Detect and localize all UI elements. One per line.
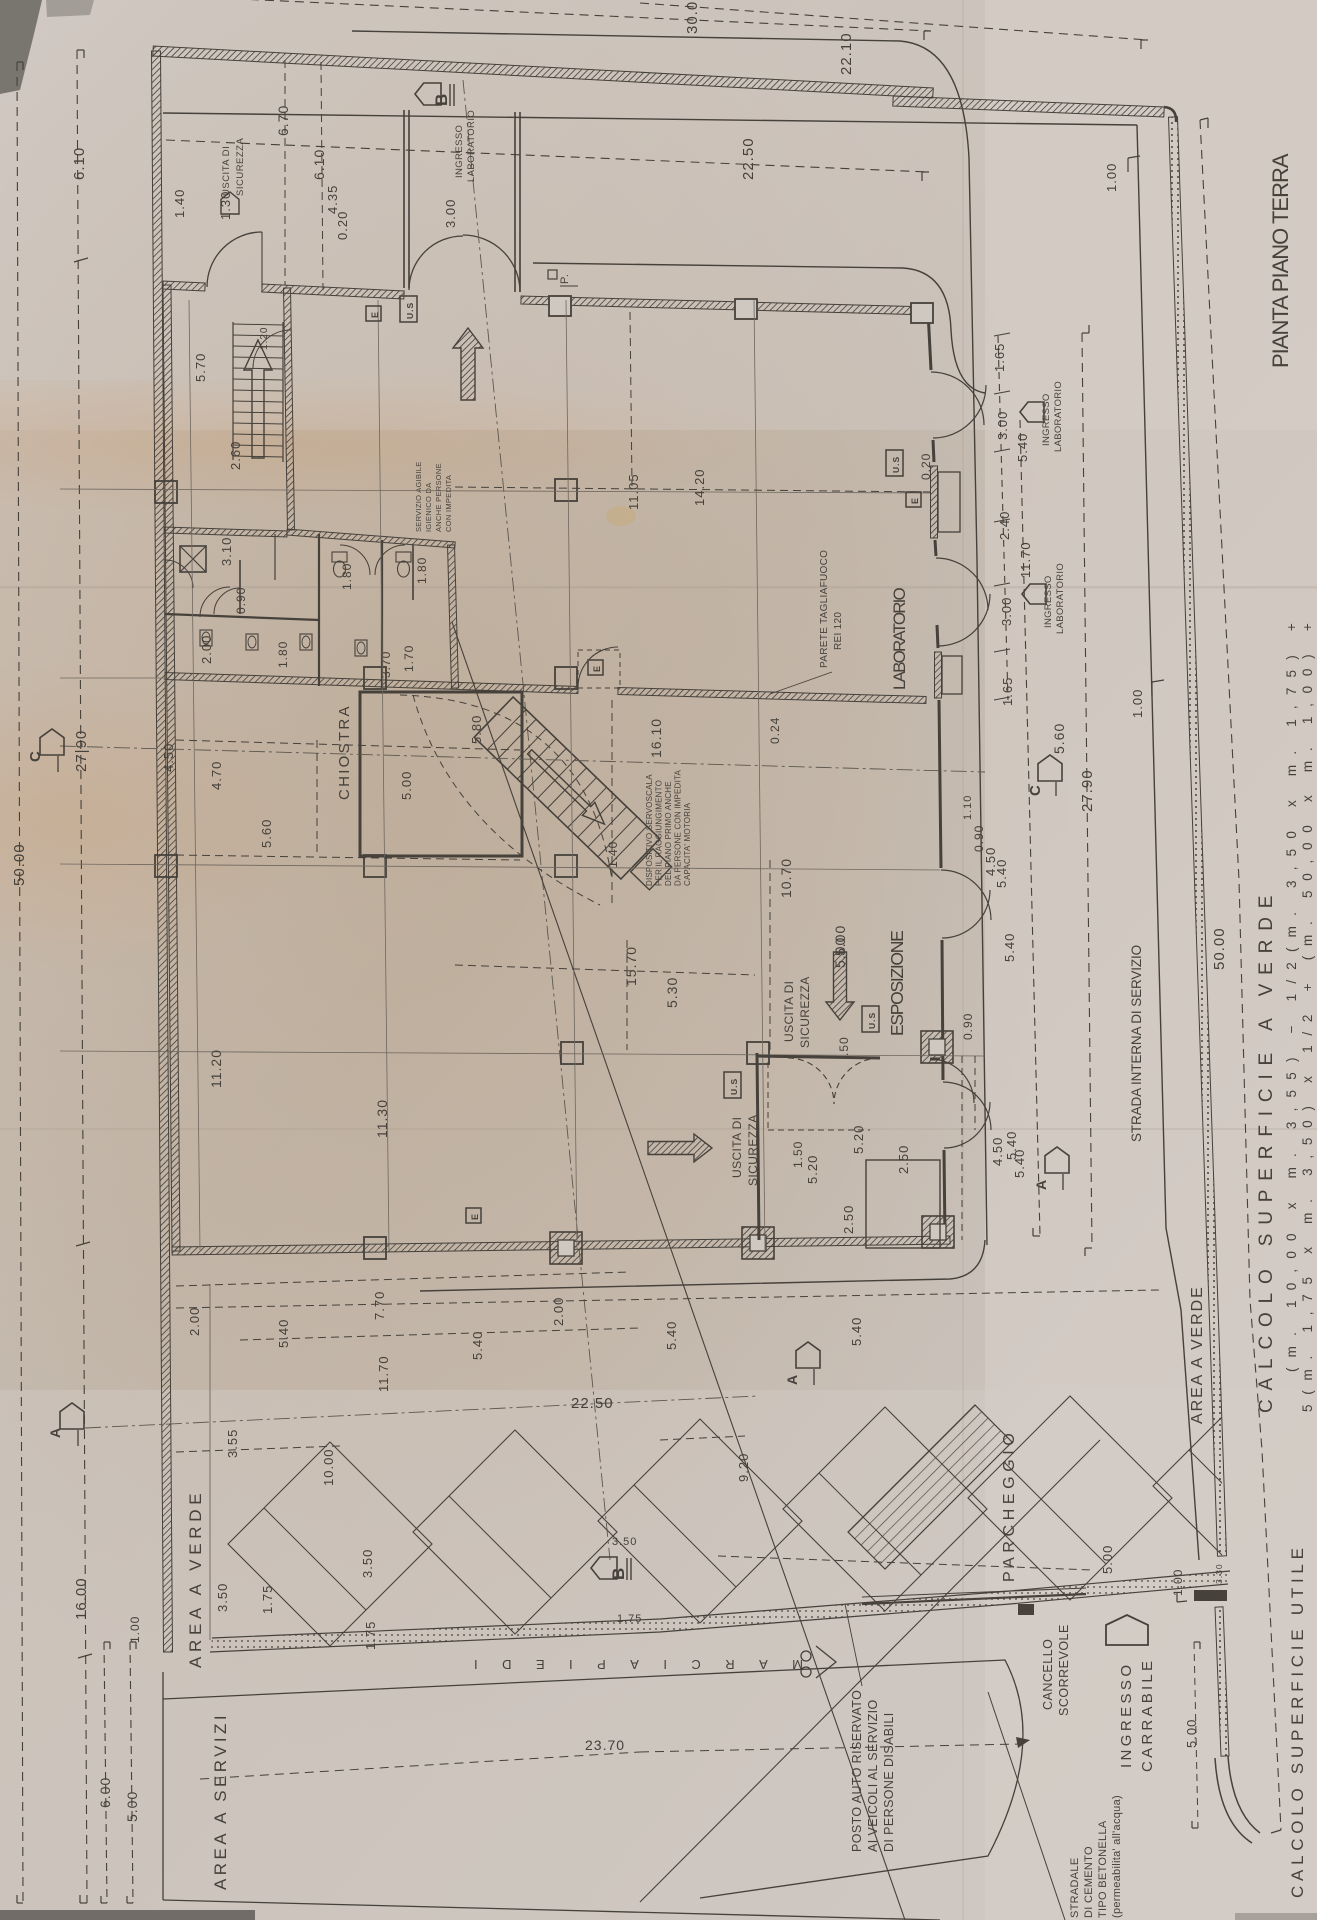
svg-text:3.00: 3.00 [443,199,458,228]
svg-text:PARETE TAGLIAFUOCO: PARETE TAGLIAFUOCO [819,550,830,668]
svg-text:3.50: 3.50 [360,1549,375,1578]
svg-text:P.: P. [559,273,571,284]
svg-text:10.00: 10.00 [321,1448,336,1486]
svg-text:5.40: 5.40 [849,1317,864,1346]
svg-text:23.70: 23.70 [585,1737,625,1753]
svg-text:6.70: 6.70 [275,105,291,136]
svg-text:5.20: 5.20 [851,1125,866,1154]
svg-text:5.60: 5.60 [1051,723,1067,754]
svg-text:4.50: 4.50 [990,1137,1005,1166]
svg-text:CALCOLO SUPERFICIE UTILE: CALCOLO SUPERFICIE UTILE [1288,1546,1307,1898]
svg-text:3.50: 3.50 [612,1536,637,1548]
svg-text:PER IL RAGGIUNGIMENTO: PER IL RAGGIUNGIMENTO [655,780,664,886]
svg-text:1.70: 1.70 [402,645,416,672]
svg-text:2.50: 2.50 [896,1145,911,1174]
svg-text:16.00: 16.00 [73,1577,90,1620]
svg-text:DI CEMENTO: DI CEMENTO [1083,1846,1095,1918]
svg-text:1.75: 1.75 [260,1585,275,1614]
svg-text:CON IMPEDITA: CON IMPEDITA [444,475,453,532]
svg-text:CANCELLO: CANCELLO [1041,1639,1055,1710]
svg-text:9.20: 9.20 [736,1453,751,1482]
svg-text:1.10: 1.10 [962,795,974,820]
svg-text:2.40: 2.40 [997,511,1012,540]
svg-text:USCITA DI: USCITA DI [730,1117,744,1178]
svg-text:5.00: 5.00 [1184,1719,1199,1748]
svg-text:A: A [1033,1179,1049,1190]
svg-text:1.75: 1.75 [617,1613,642,1625]
svg-text:A: A [47,1427,63,1438]
svg-text:AREA A SERVIZI: AREA A SERVIZI [211,1714,230,1890]
svg-text:1.80: 1.80 [340,563,354,590]
svg-text:10.70: 10.70 [778,858,794,898]
svg-text:INGRESSO: INGRESSO [454,125,465,178]
svg-text:STRADA INTERNA DI SERVIZIO: STRADA INTERNA DI SERVIZIO [1129,944,1144,1142]
svg-text:USCITA DI: USCITA DI [782,981,796,1042]
svg-text:C: C [1027,784,1044,796]
svg-text:DISPOSITIVO SERVOSCALA: DISPOSITIVO SERVOSCALA [645,774,654,886]
svg-text:SICUREZZA: SICUREZZA [235,138,246,197]
svg-text:30.0: 30.0 [684,1,701,34]
svg-text:0.20: 0.20 [919,453,933,480]
svg-text:22.10: 22.10 [838,32,855,75]
svg-text:5.40: 5.40 [994,859,1009,888]
svg-text:1.00: 1.00 [128,1616,142,1643]
svg-text:5.30: 5.30 [664,977,680,1008]
svg-text:PIANTA PIANO TERRA: PIANTA PIANO TERRA [1268,152,1293,368]
svg-text:STRADALE: STRADALE [1069,1858,1081,1918]
svg-text:2.00: 2.00 [187,1307,202,1336]
svg-text:1.20: 1.20 [259,327,270,350]
svg-text:6.10: 6.10 [311,149,327,180]
svg-text:5.00: 5.00 [399,771,414,800]
svg-text:4.70: 4.70 [209,761,224,790]
svg-text:11.70: 11.70 [376,1355,391,1392]
svg-text:5.00: 5.00 [1100,1545,1115,1574]
svg-text:50.00: 50.00 [11,843,28,886]
svg-text:2.50: 2.50 [841,1205,856,1234]
svg-text:5.40: 5.40 [1012,1149,1027,1178]
svg-text:ANCHE PERSONE: ANCHE PERSONE [434,463,443,532]
svg-text:B: B [432,93,451,106]
svg-text:14.20: 14.20 [692,468,707,506]
svg-text:5.80: 5.80 [469,715,484,744]
svg-text:LABORATORIO: LABORATORIO [466,110,477,182]
svg-text:5.40: 5.40 [664,1321,679,1350]
svg-text:IGIENICO DA: IGIENICO DA [424,482,433,532]
svg-text:AREA A VERDE: AREA A VERDE [1189,1286,1206,1424]
svg-text:11.70: 11.70 [1018,541,1033,578]
svg-text:4.50: 4.50 [161,743,176,772]
svg-text:INGRESSO: INGRESSO [1118,1664,1135,1768]
svg-text:0.20: 0.20 [335,211,350,240]
svg-text:5.40: 5.40 [276,1319,291,1348]
svg-text:INGRESSO: INGRESSO [1041,393,1052,446]
svg-text:0.90: 0.90 [961,1013,975,1040]
svg-text:CAPACITA' MOTORIA: CAPACITA' MOTORIA [683,802,692,886]
svg-text:5.40: 5.40 [470,1331,485,1360]
svg-text:3.00: 3.00 [999,597,1014,626]
svg-text:22.50: 22.50 [740,137,757,180]
svg-text:6.00: 6.00 [97,1777,113,1808]
svg-text:A: A [784,1374,800,1385]
svg-text:E: E [370,311,380,318]
svg-text:11.05: 11.05 [626,473,641,510]
svg-text:DEL PIANO PRIMO ANCHE: DEL PIANO PRIMO ANCHE [664,781,673,886]
svg-text:E: E [910,497,920,504]
svg-text:U.S: U.S [867,1012,877,1029]
svg-text:1.65: 1.65 [1000,677,1015,706]
svg-text:1.50: 1.50 [791,1141,805,1168]
svg-text:5.70: 5.70 [193,353,208,382]
svg-text:INGRESSO: INGRESSO [1043,575,1054,628]
svg-text:LABORATORIO: LABORATORIO [1055,563,1066,634]
svg-text:1.00: 1.00 [1104,163,1119,192]
svg-text:50.00: 50.00 [1211,927,1228,970]
svg-text:5.40: 5.40 [1015,433,1030,462]
svg-text:5.60: 5.60 [259,819,274,848]
svg-text:E: E [592,665,602,672]
svg-text:AREA A VERDE: AREA A VERDE [186,1492,205,1668]
svg-text:3.55: 3.55 [225,1429,240,1458]
svg-text:27.90: 27.90 [1079,769,1096,812]
svg-text:5.20: 5.20 [805,1155,820,1184]
svg-text:2.60: 2.60 [228,441,243,470]
svg-text:1.80: 1.80 [415,557,429,584]
svg-text:REI 120: REI 120 [833,612,844,650]
svg-text:0.90: 0.90 [234,587,248,614]
svg-text:LABORATORIO: LABORATORIO [890,586,909,690]
svg-text:U.S: U.S [729,1078,739,1095]
svg-text:SICUREZZA: SICUREZZA [798,976,812,1048]
svg-text:3.10: 3.10 [219,537,234,566]
svg-text:C: C [27,750,44,762]
svg-text:11.30: 11.30 [374,1099,390,1138]
svg-text:ESPOSIZIONE: ESPOSIZIONE [887,929,907,1036]
svg-text:CHIOSTRA: CHIOSTRA [336,705,353,800]
svg-text:SERVIZIO AGIBILE: SERVIZIO AGIBILE [414,461,423,532]
svg-text:5.40: 5.40 [1002,933,1017,962]
svg-text:LABORATORIO: LABORATORIO [1053,381,1064,452]
svg-text:U.S: U.S [405,302,415,319]
svg-text:(permeabilita' all'acqua): (permeabilita' all'acqua) [1111,1795,1123,1918]
svg-text:4.35: 4.35 [325,185,340,214]
svg-text:.50: .50 [837,1036,851,1056]
svg-text:6.10: 6.10 [71,147,88,180]
svg-text:1.00: 1.00 [1171,1569,1185,1596]
svg-text:7.70: 7.70 [372,1291,387,1320]
svg-text:15.70: 15.70 [623,946,639,986]
svg-text:2.00: 2.00 [199,635,214,664]
svg-text:USCITA DI: USCITA DI [221,146,232,196]
svg-text:B: B [609,1567,628,1580]
svg-text:1.00: 1.00 [1130,689,1145,718]
svg-text:11.20: 11.20 [208,1049,224,1088]
svg-text:1.40: 1.40 [606,841,620,868]
svg-text:CARRABILE: CARRABILE [1139,1660,1156,1772]
svg-text:AI VEICOLI AL SERVIZIO: AI VEICOLI AL SERVIZIO [866,1699,880,1852]
svg-text:3.50: 3.50 [215,1583,230,1612]
svg-text:E: E [470,1213,480,1220]
svg-text:CALCOLO SUPERFICIE A VERDE: CALCOLO SUPERFICIE A VERDE [1256,893,1277,1413]
svg-text:1.40: 1.40 [172,189,187,218]
svg-text:1.65: 1.65 [992,343,1007,372]
svg-text:3.00: 3.00 [995,411,1010,440]
svg-text:22.50: 22.50 [571,1395,614,1412]
svg-text:POSTO AUTO RISERVATO: POSTO AUTO RISERVATO [850,1690,864,1852]
svg-text:5.00: 5.00 [124,1791,140,1822]
svg-text:27|90: 27|90 [73,730,90,772]
svg-text:TIPO BETONELLA: TIPO BETONELLA [1097,1820,1109,1918]
svg-text:5.00: 5.00 [832,925,848,956]
svg-text:16.10: 16.10 [648,718,664,758]
svg-text:3.30: 3.30 [1214,1563,1224,1584]
svg-text:1.80: 1.80 [276,641,290,668]
svg-text:SCORREVOLE: SCORREVOLE [1057,1624,1071,1716]
svg-text:DI PERSONE DISABILI: DI PERSONE DISABILI [882,1712,896,1852]
svg-text:0.24: 0.24 [768,717,782,744]
svg-text:U.S: U.S [891,456,901,473]
svg-text:1.75: 1.75 [363,1621,378,1650]
